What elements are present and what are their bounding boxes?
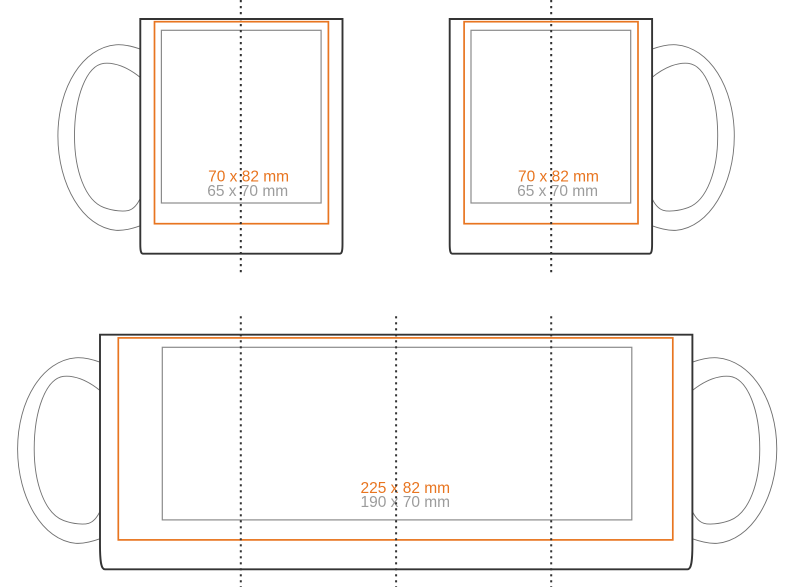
svg-text:190 x 70 mm: 190 x 70 mm xyxy=(360,494,450,511)
svg-text:65 x 70 mm: 65 x 70 mm xyxy=(517,183,598,200)
svg-text:65 x 70 mm: 65 x 70 mm xyxy=(207,183,288,200)
